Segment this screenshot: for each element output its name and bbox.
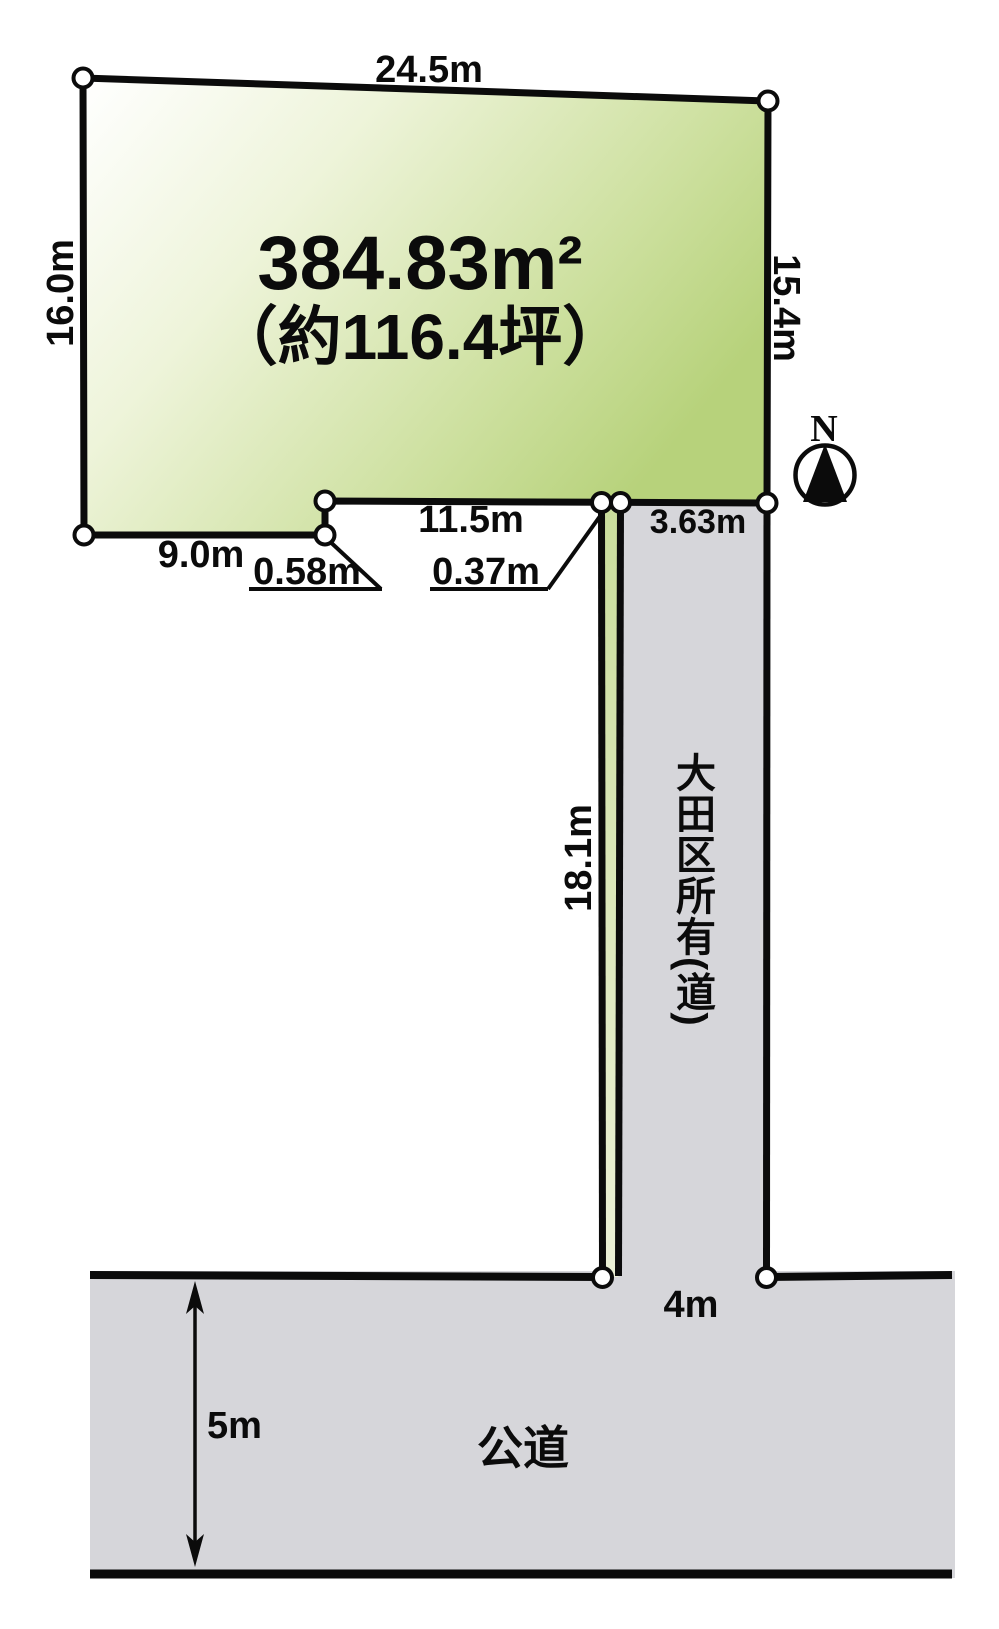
dim-private-road-bottom: 4m [664,1284,719,1326]
dim-bottom-middle: 11.5m [418,499,524,541]
dim-setback-step: 0.58m [253,551,361,593]
dim-top: 24.5m [375,49,483,91]
vertex-marker [74,69,93,88]
private-road-label: 大田区所有(道) [663,752,721,1027]
vertex-marker [611,493,630,512]
dim-left: 16.0m [40,239,82,347]
vertex-marker [759,92,778,111]
plot-diagram-canvas: N 384.83m² （約116.4坪） 24.5m 16.0m 15.4m 9… [0,0,999,1629]
land-plot-diagram: N 384.83m² （約116.4坪） 24.5m 16.0m 15.4m 9… [0,0,999,1629]
vertex-marker [757,1268,776,1287]
strip-right-line [619,503,621,1276]
dim-right: 15.4m [765,254,807,362]
vertex-marker [592,493,611,512]
private-road-right-line [767,503,768,1278]
dim-bottom-left: 9.0m [158,534,245,576]
vertex-marker [593,1268,612,1287]
strip-left-line [602,503,603,1277]
plot-area-tsubo-label: （約116.4坪） [214,301,627,373]
public-road-top-line-left [90,1275,603,1277]
dim-037-leader [548,512,603,589]
dim-private-road-top: 3.63m [650,503,746,541]
dim-public-road-width: 5m [207,1405,262,1447]
plot-area-label: 384.83m² [257,221,582,306]
public-road-label: 公道 [477,1422,569,1474]
dim-strip-width: 0.37m [432,551,540,593]
vertex-marker [758,494,777,513]
dim-private-road-length: 18.1m [558,804,600,912]
vertex-marker [316,526,335,545]
vertex-marker [75,526,94,545]
public-road-top-line-right [767,1275,952,1277]
vertex-marker [316,492,335,511]
compass: N [796,408,855,505]
